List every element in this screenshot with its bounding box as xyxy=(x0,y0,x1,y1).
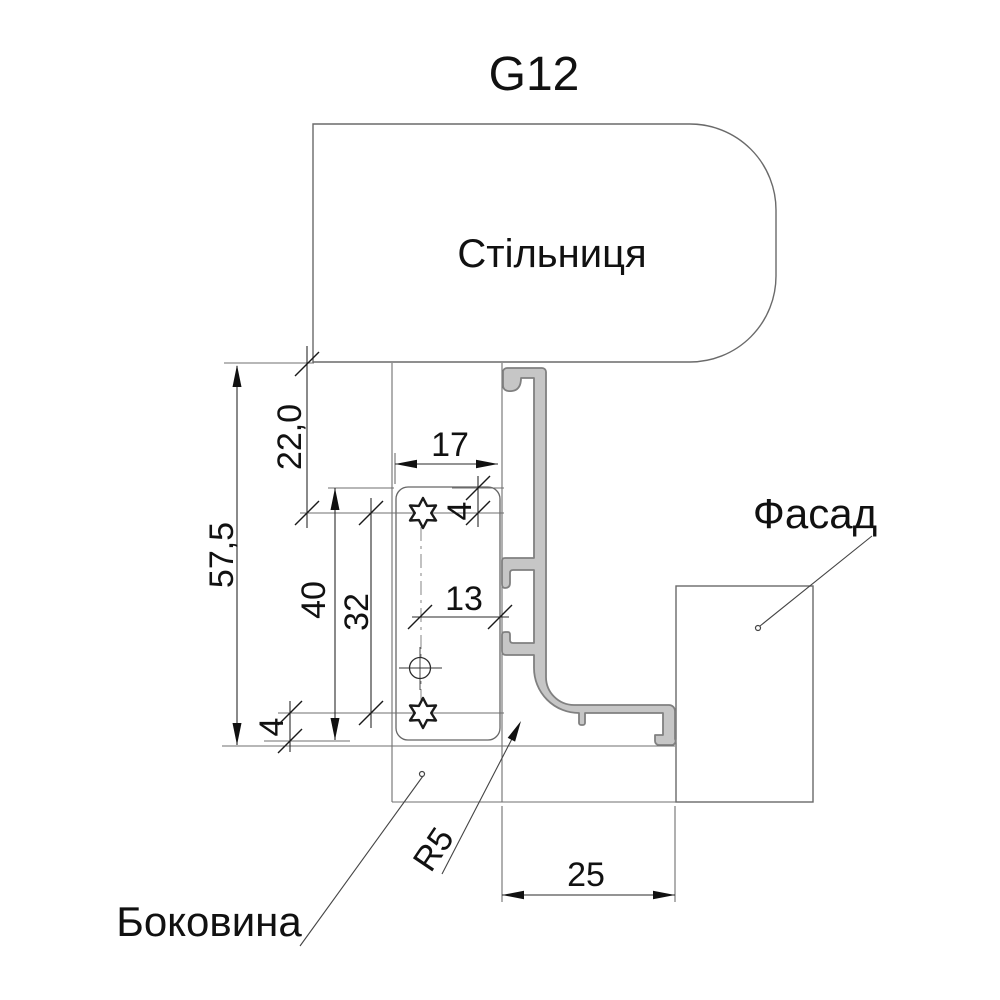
dim-hole-to-front-value: 13 xyxy=(445,580,483,618)
dim-bend-radius-value: R5 xyxy=(406,821,462,878)
dim-screw-offset-bottom: 4 xyxy=(253,701,302,753)
drawing-canvas: 57,5 22,0 40 32 4 4 17 xyxy=(0,0,1000,1000)
gola-profile-shape xyxy=(502,368,676,745)
countertop-label: Стільниця xyxy=(457,232,646,276)
dim-countertop-to-screw: 22,0 xyxy=(271,346,319,528)
facade-shape xyxy=(676,586,813,802)
dim-plate-width: 17 xyxy=(395,426,498,468)
side-panel-label: Боковина xyxy=(116,898,302,945)
dim-total-height: 57,5 xyxy=(203,365,242,745)
dim-screw-offset-bottom-value: 4 xyxy=(253,718,291,737)
dim-total-height-value: 57,5 xyxy=(203,522,241,588)
dim-screw-offset-top-value: 4 xyxy=(441,502,479,521)
dim-bend-radius: R5 xyxy=(406,721,521,878)
gola-profile-technical-drawing: 57,5 22,0 40 32 4 4 17 xyxy=(0,0,1000,1000)
dim-screw-spacing-value: 32 xyxy=(338,593,376,631)
facade-label: Фасад xyxy=(753,490,877,537)
dim-plate-width-value: 17 xyxy=(431,426,469,464)
dim-screw-spacing: 32 xyxy=(338,498,383,728)
dim-front-depth-value: 25 xyxy=(567,856,605,894)
page-title: G12 xyxy=(489,48,580,101)
dim-plate-length-value: 40 xyxy=(295,581,333,619)
dim-countertop-to-screw-value: 22,0 xyxy=(271,404,309,470)
dim-front-depth: 25 xyxy=(502,856,675,899)
side-panel-leader xyxy=(300,772,425,947)
